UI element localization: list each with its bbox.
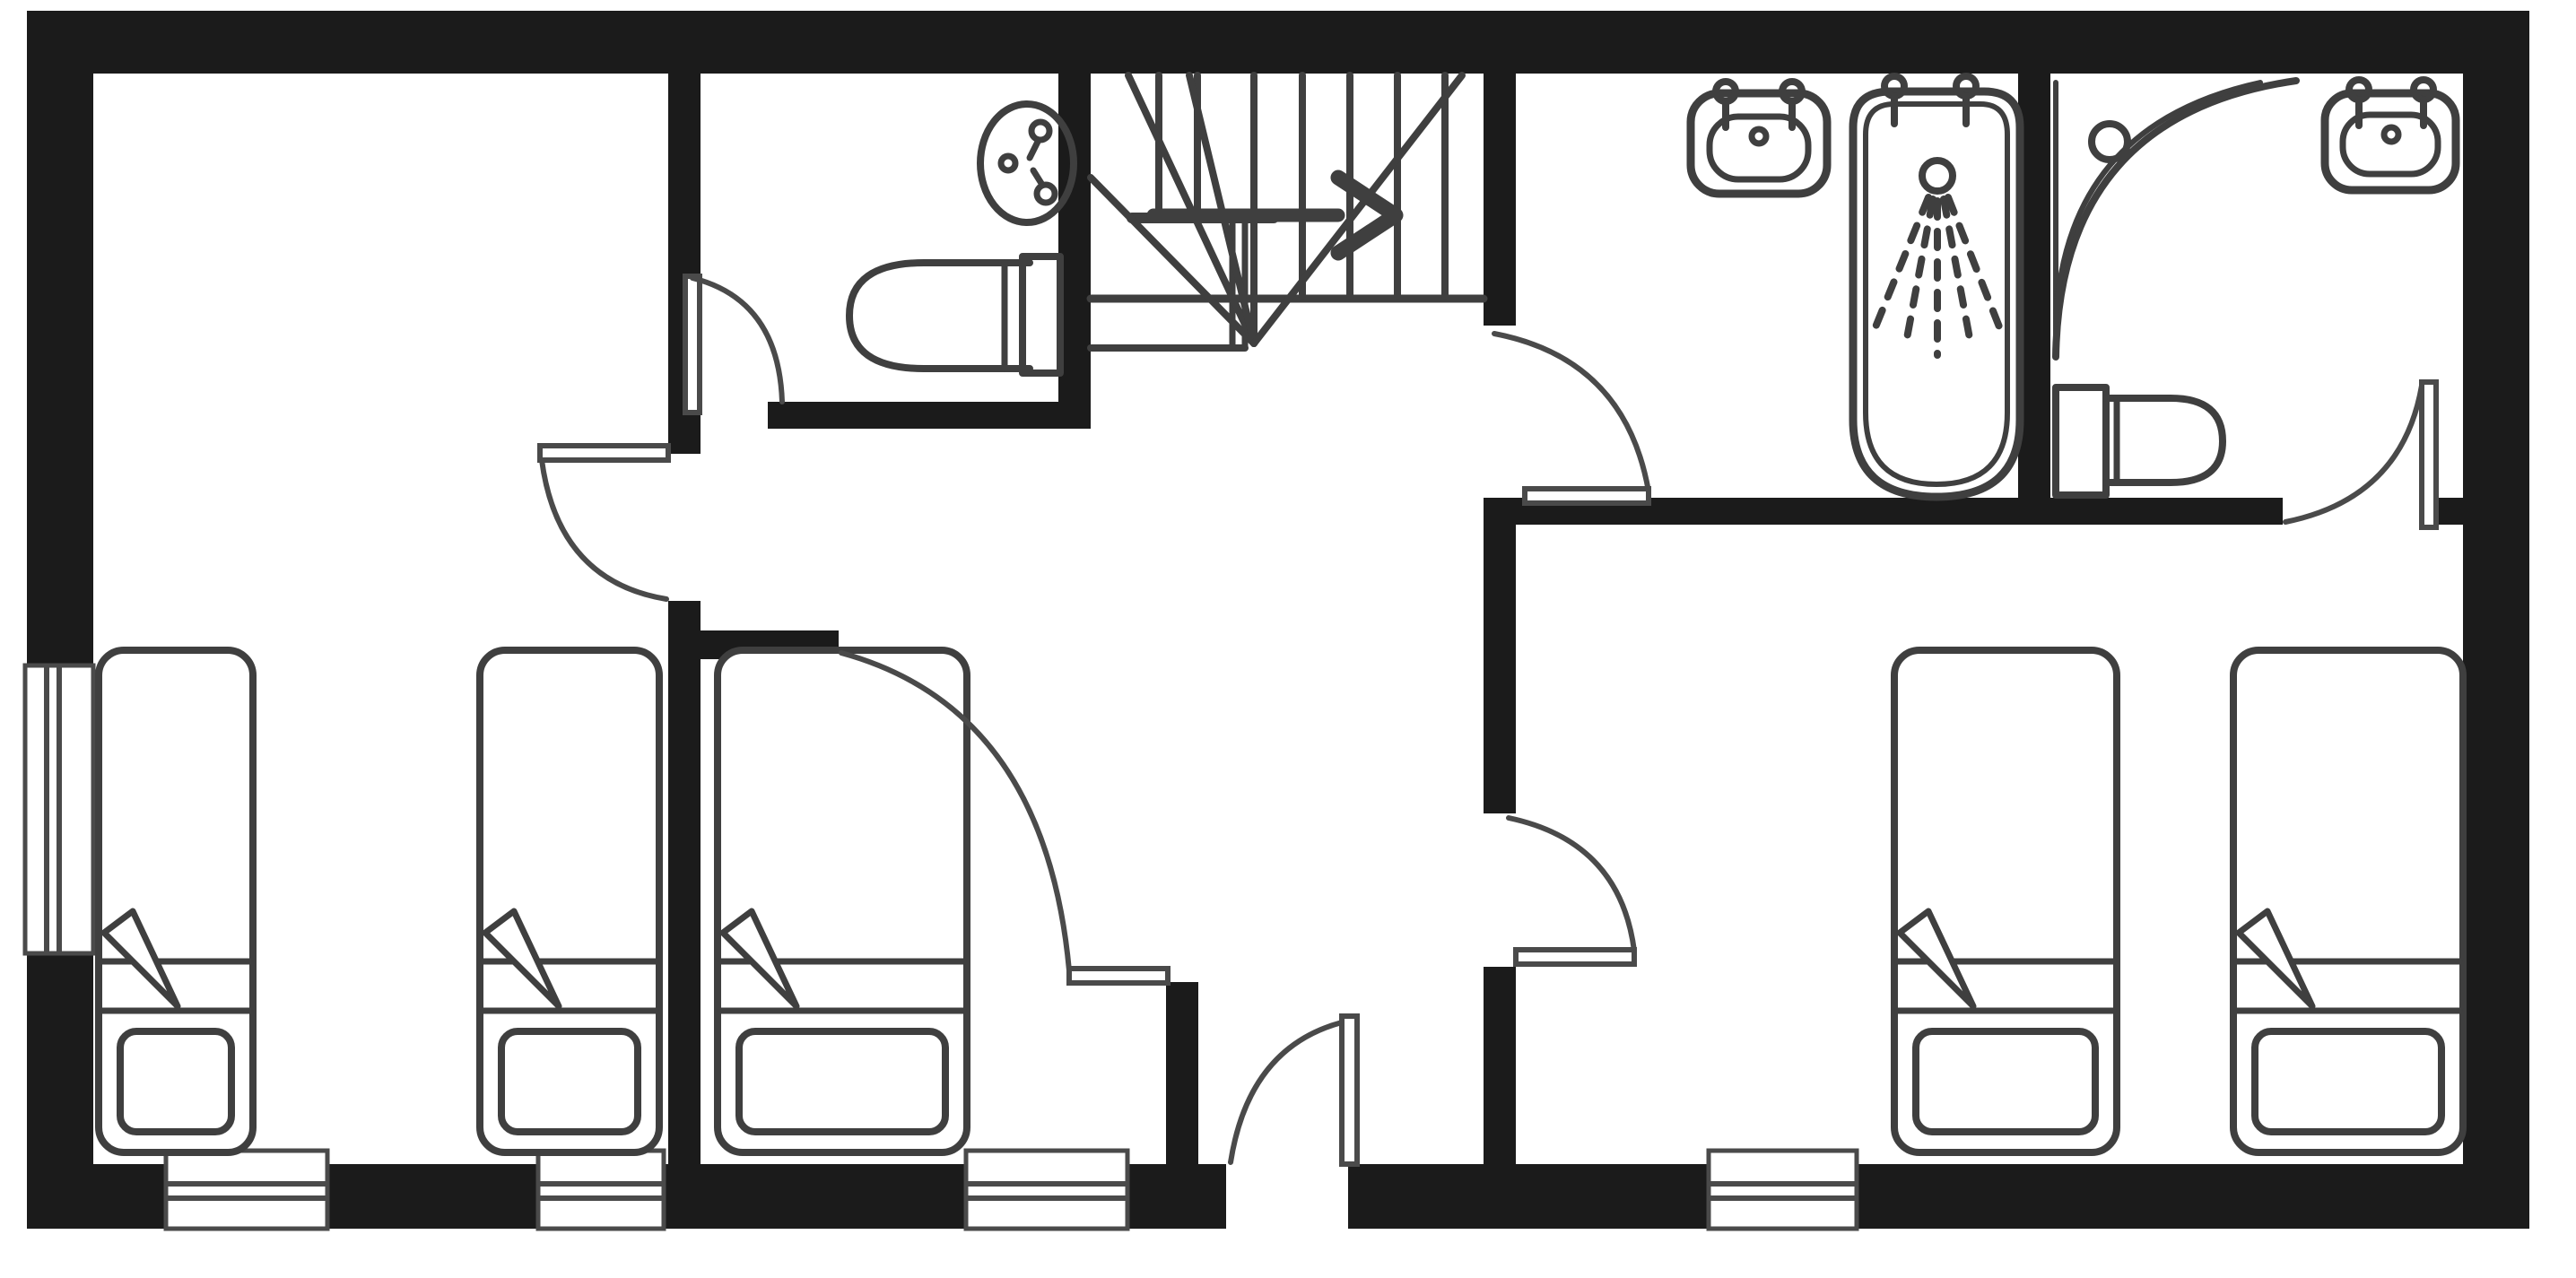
wall-bedroom3-west-lower [1484, 967, 1516, 1164]
door-bedroom-3 [1509, 818, 1634, 964]
toilet-cistern [2056, 387, 2106, 495]
door-swing-arc [1509, 818, 1634, 951]
tap-stem [1033, 170, 1042, 185]
door-wc [685, 276, 782, 413]
bottom-window-3 [966, 1151, 1127, 1229]
bed-2 [480, 650, 659, 1152]
bathtub [1853, 76, 2020, 497]
door-swing-arc [692, 278, 782, 402]
wall-bottom-seg4 [1127, 1164, 1226, 1229]
wall-right [2463, 11, 2529, 1229]
bathroom [1691, 76, 2020, 497]
toilet-bowl [2106, 398, 2223, 483]
pillow [1916, 1031, 2095, 1132]
wall-bottom-seg3 [664, 1164, 966, 1229]
shower-tray-outer [2056, 81, 2296, 357]
wall-top [27, 11, 2529, 74]
wall-stairwell-east [1484, 74, 1516, 326]
door-swing-arc [1231, 1022, 1342, 1162]
door-shower-room [2285, 382, 2436, 527]
drain-icon [2384, 127, 2398, 142]
wall-bottom-seg1 [27, 1164, 166, 1229]
door-bedroom-1 [540, 446, 668, 599]
bed-5 [2233, 650, 2463, 1152]
drain-icon [1001, 156, 1015, 170]
wall-bottom-seg6 [1857, 1164, 2529, 1229]
pillow [120, 1031, 231, 1132]
tap-icon [1037, 185, 1055, 203]
wc-room [849, 104, 1074, 373]
door-leaf [1516, 950, 1634, 964]
pillow [2255, 1031, 2441, 1132]
tap-icon [1031, 122, 1049, 140]
drain-icon [2092, 124, 2128, 160]
wc-toilet [849, 256, 1060, 373]
wall-bedroom1-divider-lower [668, 601, 701, 1164]
door-hall-exterior [1231, 1016, 1357, 1164]
bottom-window-2 [538, 1151, 664, 1229]
door-leaf [1069, 969, 1168, 983]
door-bathroom [1494, 334, 1649, 503]
floor-plan-drawing [0, 0, 2576, 1278]
bed-4 [1894, 650, 2117, 1152]
wall-bottom-seg5 [1348, 1164, 1709, 1229]
showerroom-toilet [2056, 387, 2223, 495]
door-swing-arc [542, 460, 666, 599]
tap-stem [1030, 140, 1039, 158]
exterior-walls [27, 11, 2529, 1229]
direction-arrow [1153, 178, 1396, 253]
wall-bedroom3-west-upper [1484, 525, 1516, 813]
wall-bottom-seg2 [327, 1164, 538, 1229]
beds [99, 650, 2463, 1152]
wall-bedroom2-door-stub [1166, 982, 1198, 1164]
door-leaf [540, 446, 668, 460]
door-leaf [2422, 382, 2436, 527]
bottom-window-4 [1709, 1151, 1857, 1229]
pillow [501, 1031, 638, 1132]
wall-left-upper [27, 11, 93, 665]
left-wall-window [25, 665, 93, 953]
bed-1 [99, 650, 253, 1152]
door-leaf [1342, 1016, 1357, 1164]
door-swing-arc [2285, 386, 2422, 522]
shower-head-icon [1922, 161, 1953, 191]
door-leaf [685, 276, 700, 413]
scanned-floor-plan-page [0, 0, 2576, 1278]
wall-wc-south [768, 402, 1091, 429]
showerroom-basin [2325, 80, 2456, 190]
bottom-window-1 [166, 1151, 327, 1229]
shower-spray-lines [1873, 197, 2002, 355]
wall-showerroom-south-west [2050, 498, 2283, 525]
shower-room [2056, 80, 2456, 495]
door-leaf [1525, 489, 1649, 503]
drain-icon [1752, 129, 1766, 143]
bathroom-basin [1691, 82, 1827, 194]
shower-tray-inner [2056, 83, 2260, 325]
toilet-cistern [1023, 256, 1060, 373]
winder-staircase [1091, 75, 1484, 348]
corner-shower [2056, 81, 2296, 357]
door-swing-arc [1494, 334, 1649, 491]
bed-3 [718, 650, 967, 1152]
pillow [739, 1031, 945, 1132]
